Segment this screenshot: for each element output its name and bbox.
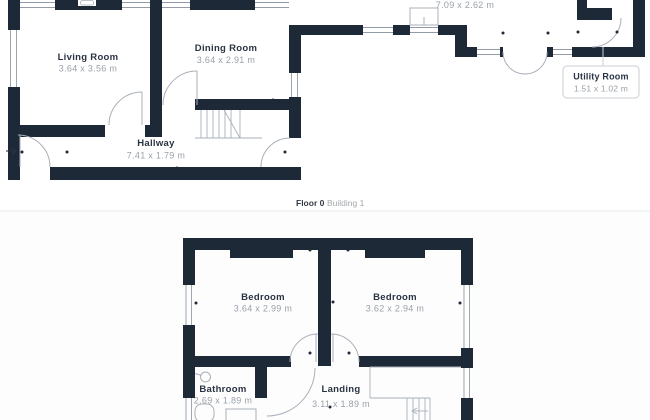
wall-step [455,25,467,57]
window [553,50,572,55]
wall [190,0,255,10]
wall-chimney-left [230,250,293,258]
wall-hallway-bottom [50,167,301,180]
wall [289,97,301,138]
landing-dims: 3.11 x 1.89 m [312,399,370,409]
wall-stub [255,356,267,398]
wall [461,398,473,420]
hallway-dims: 7.41 x 1.79 m [127,151,185,161]
wall-dining-bottom [195,99,289,110]
window [289,73,301,97]
floorplan-page: Living Room 3.64 x 3.56 m Dining Room 3.… [0,0,650,420]
dining-room-dims: 3.64 x 2.91 m [197,55,255,65]
floor0-caption: Floor 0 [296,198,325,208]
bedroom-left-label: Bedroom [241,292,285,303]
wall-kitchen [393,25,410,35]
hallway-label: Hallway [137,138,175,149]
bedroom-right-dims: 3.62 x 2.94 m [366,304,424,314]
building-caption: Building 1 [327,198,365,208]
wall-chimney-right [365,250,425,258]
landing-label: Landing [321,384,360,395]
living-room-dims: 3.64 x 3.56 m [59,64,117,74]
window [255,3,289,8]
living-room-label: Living Room [58,52,119,63]
utility-room-label: Utility Room [573,72,628,82]
living-room-door [109,92,142,125]
floor0-doors [18,18,621,167]
bedroom-right-label: Bedroom [373,292,417,303]
floor-divider [0,211,650,212]
wall [183,325,195,398]
sink-fixture-icon [410,8,438,25]
wall-top [183,238,473,250]
window [363,28,393,33]
wall [461,250,473,285]
wall [145,125,162,137]
wall [359,356,461,367]
wall [267,356,291,367]
wall [547,47,553,57]
wall [8,87,20,180]
french-doors [503,52,547,74]
wall-right [633,0,645,57]
window [20,3,55,8]
floor0-plan: Living Room 3.64 x 3.56 m Dining Room 3.… [6,0,645,208]
wall [8,167,18,180]
fireplace-icon [81,1,94,6]
dining-room-label: Dining Room [195,43,257,54]
kitchen-dims: 7.09 x 2.62 m [436,0,494,10]
bathroom-dims: 2.69 x 1.89 m [194,396,252,406]
window [477,50,500,55]
wall [467,47,477,57]
bathroom-label: Bathroom [199,384,246,395]
staircase-floor0 [195,110,262,138]
wall-utility [585,8,612,20]
wall-divider-living-dining [150,0,162,137]
wall-bathroom-top [195,356,255,367]
floor0-walls [8,0,645,180]
wall-hallway-top [20,125,105,137]
bedroom-left-dims: 3.64 x 2.99 m [234,304,292,314]
dining-room-door [163,71,197,105]
wall [8,0,20,30]
wall [183,250,195,285]
floorplan-drawing: Living Room 3.64 x 3.56 m Dining Room 3.… [0,0,650,420]
utility-room-dims: 1.51 x 1.02 m [574,84,628,94]
window [410,28,438,33]
window [8,30,20,87]
wall [461,348,473,368]
window [162,3,190,8]
window [122,3,150,8]
wall-divider-bedrooms [318,250,331,366]
wall-kitchen [289,25,363,35]
